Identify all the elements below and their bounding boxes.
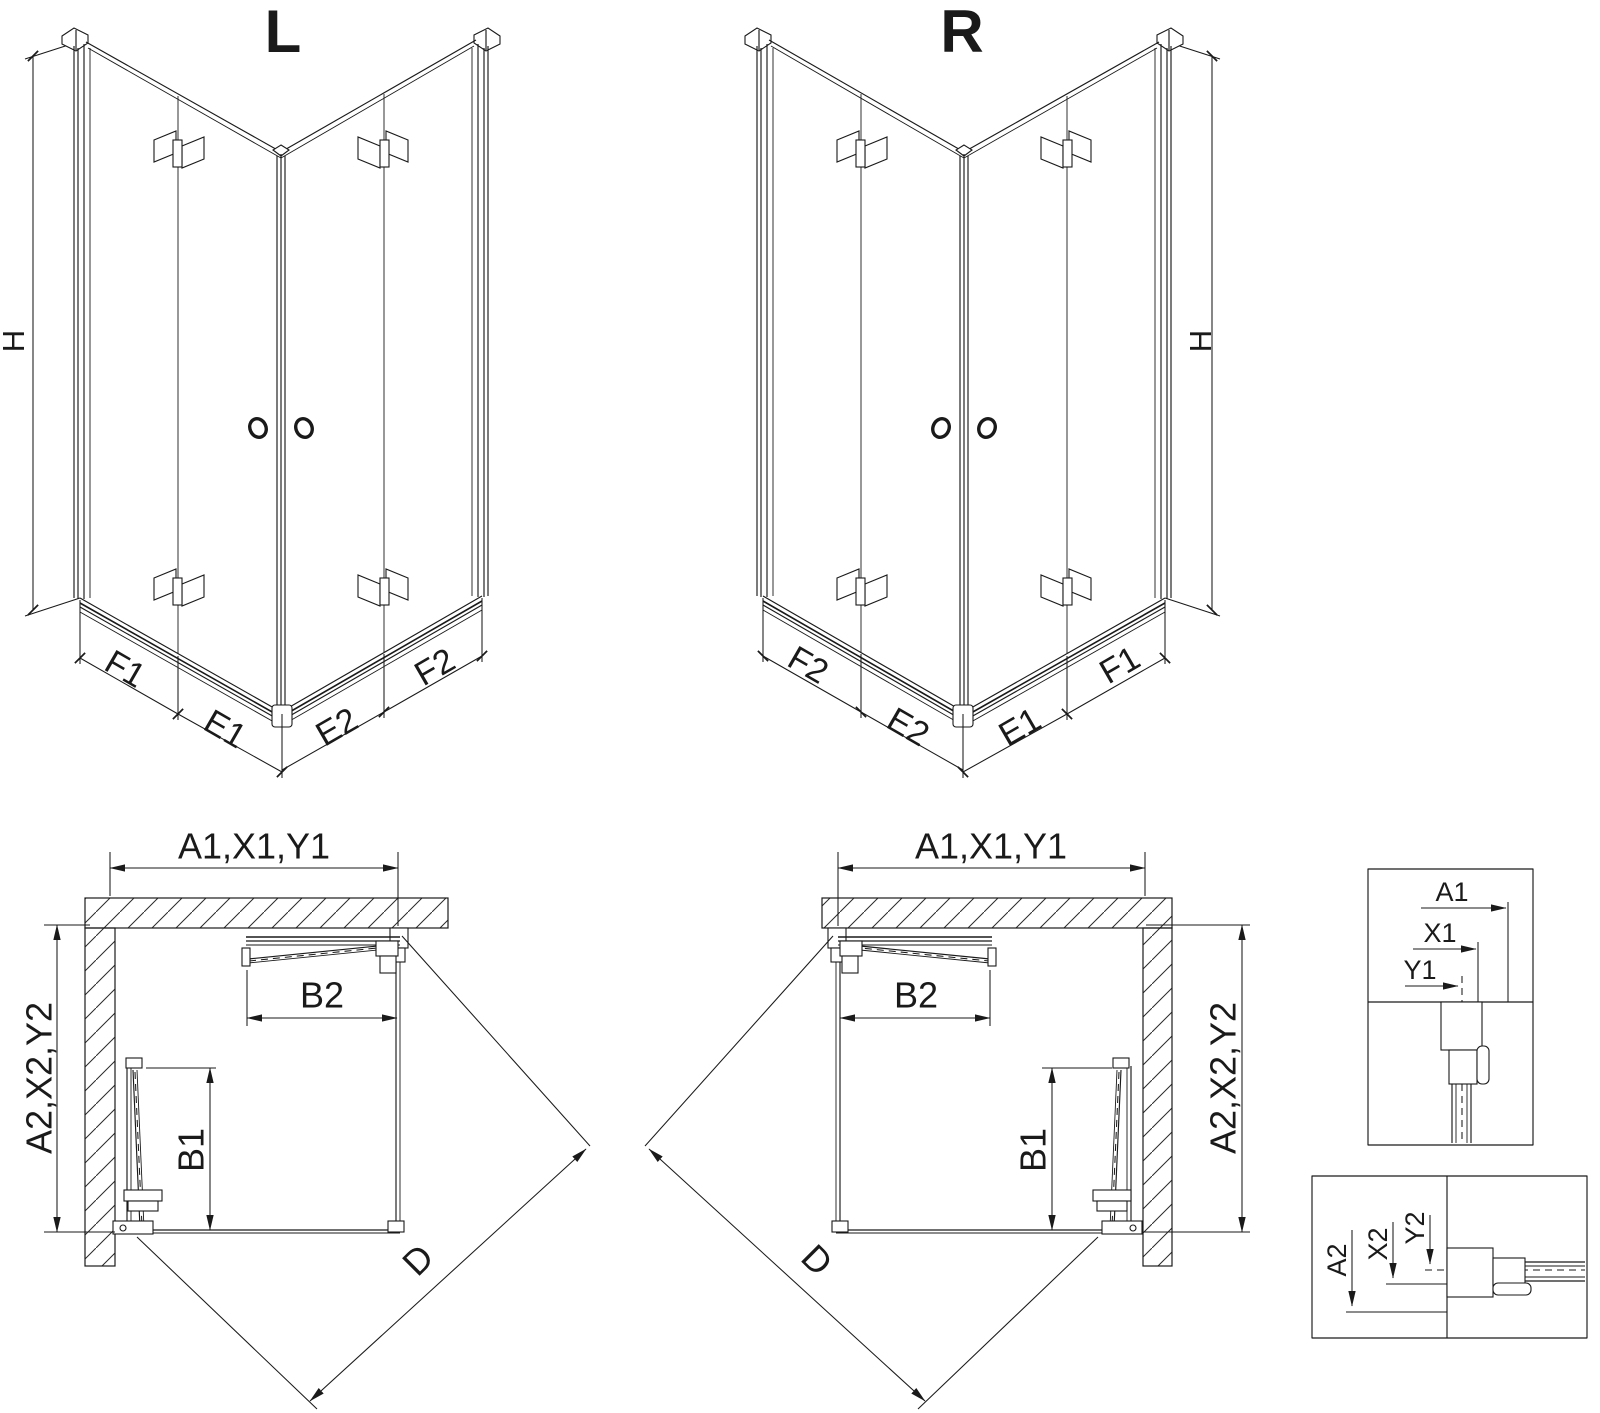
plan-right-enclosure-edges (828, 928, 1143, 1233)
iso-right-dim-e1: E1 (992, 700, 1047, 754)
detail-top-dim-x1: X1 (1423, 918, 1456, 948)
plan-right-side-door (1093, 1058, 1142, 1234)
detail-wall-profile-side: A2 X2 Y2 (1312, 1176, 1587, 1338)
plan-right-diagonal-label: D (793, 1236, 840, 1283)
detail-top-dim-a1: A1 (1435, 877, 1468, 907)
plan-right-door-side-label: B1 (1013, 1128, 1054, 1172)
plan-right-width-label: A1,X1,Y1 (915, 826, 1067, 867)
iso-left-dim-f2: F2 (408, 641, 461, 694)
detail-top-profile-section (1441, 1002, 1489, 1143)
iso-left-dim-f1: F1 (98, 643, 151, 696)
iso-left-view: L H F1 E1 E2 F2 (0, 0, 500, 778)
plan-left-diagonal-label: D (394, 1236, 441, 1283)
plan-left-depth-label: A2,X2,Y2 (19, 1002, 60, 1154)
detail-side-dim-a2: A2 (1322, 1243, 1352, 1276)
plan-right-top-wall (822, 898, 1172, 928)
plan-left-enclosure-edges (115, 928, 408, 1233)
height-dim-label-left: H (0, 330, 31, 352)
iso-left-dim-e1: E1 (197, 702, 252, 756)
plan-left-top-door (242, 937, 400, 973)
plan-left-view: A1,X1,Y1 A2,X2,Y2 B2 B1 D (19, 826, 590, 1409)
plan-right-view: A1,X1,Y1 A2,X2,Y2 B2 B1 D (645, 826, 1250, 1409)
plan-left-door-top-label: B2 (300, 975, 344, 1016)
plan-left-width-label: A1,X1,Y1 (178, 826, 330, 867)
plan-right-side-wall (1143, 928, 1172, 1266)
plan-left-side-door (113, 1058, 162, 1234)
plan-left-top-wall (85, 898, 448, 928)
variant-label-left: L (265, 0, 302, 65)
variant-label-right: R (940, 0, 983, 65)
detail-top-dim-y1: Y1 (1403, 955, 1436, 985)
detail-side-profile-section (1447, 1248, 1585, 1297)
shower-enclosure-diagram: L H F1 E1 E2 F2 R H F2 E2 E1 F1 (0, 0, 1600, 1413)
detail-side-dim-y2: Y2 (1400, 1211, 1430, 1244)
plan-right-top-door (838, 937, 996, 973)
detail-wall-profile-top: A1 X1 Y1 (1368, 869, 1533, 1145)
height-dim-label-right: H (1183, 330, 1218, 352)
iso-right-dim-e2: E2 (880, 700, 935, 754)
technical-drawing-page: L H F1 E1 E2 F2 R H F2 E2 E1 F1 (0, 0, 1600, 1413)
iso-left-dim-e2: E2 (309, 700, 364, 754)
detail-side-dim-x2: X2 (1363, 1227, 1393, 1260)
plan-right-depth-label: A2,X2,Y2 (1203, 1002, 1244, 1154)
plan-left-door-side-label: B1 (171, 1128, 212, 1172)
plan-left-side-wall (85, 928, 115, 1266)
iso-right-dim-f1: F1 (1093, 639, 1146, 692)
plan-left-dimensions (44, 852, 590, 1409)
plan-right-door-top-label: B2 (894, 975, 938, 1016)
iso-right-view: R H F2 E2 E1 F1 (745, 0, 1220, 778)
